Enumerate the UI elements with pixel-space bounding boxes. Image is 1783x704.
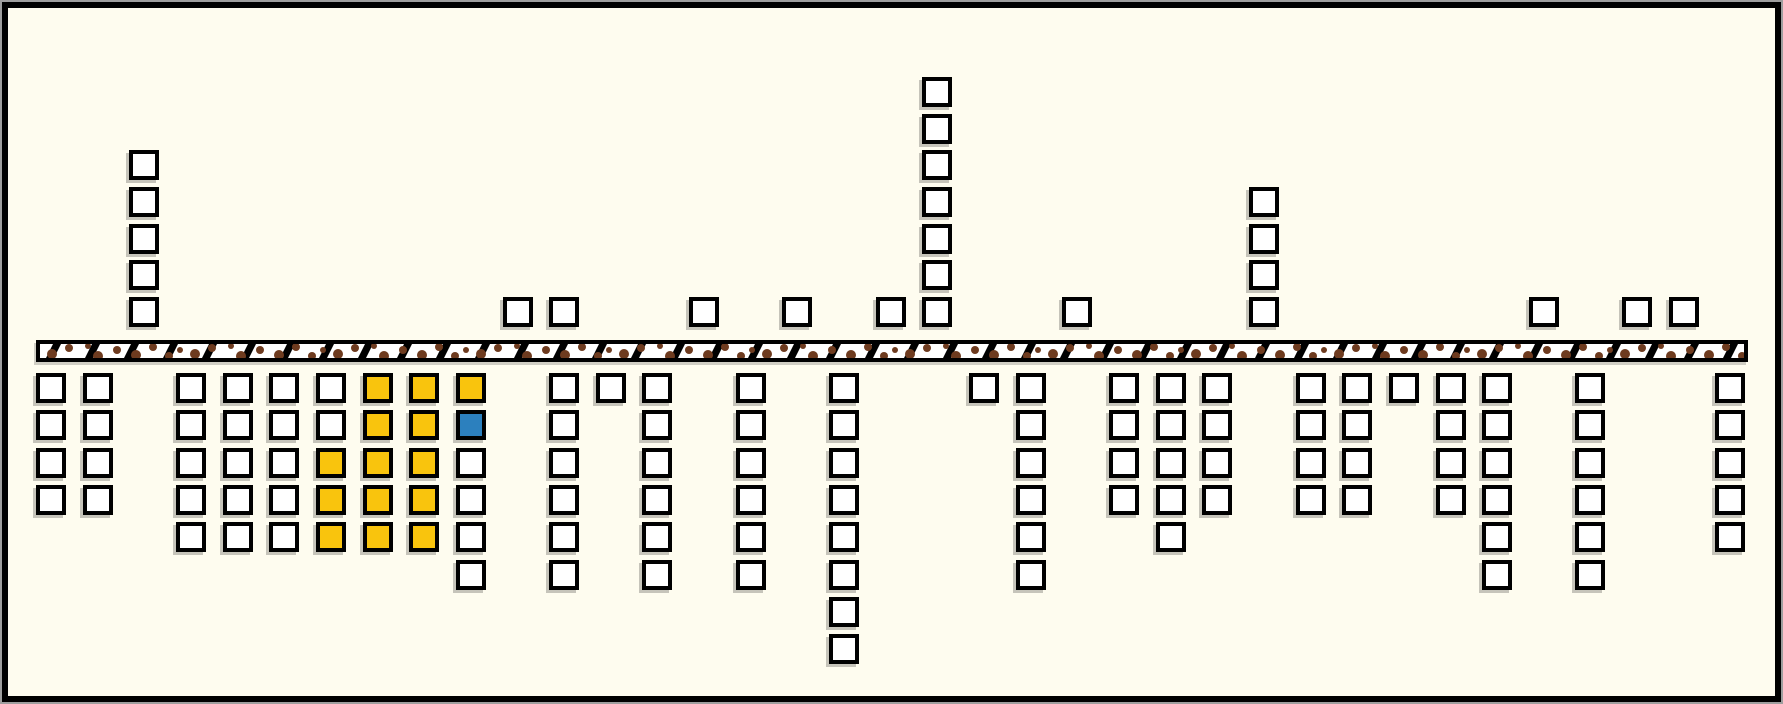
marker-square-below[interactable] [1715, 485, 1745, 515]
marker-square-below[interactable] [1436, 410, 1466, 440]
marker-square-above[interactable] [922, 77, 952, 107]
marker-square-below[interactable] [269, 448, 299, 478]
marker-square-below[interactable] [1156, 410, 1186, 440]
marker-square-below[interactable] [1202, 485, 1232, 515]
marker-square-below[interactable] [36, 448, 66, 478]
marker-square-above[interactable] [1622, 297, 1652, 327]
marker-square-below[interactable] [969, 373, 999, 403]
marker-square-highlighted[interactable] [316, 522, 346, 552]
marker-square-below[interactable] [596, 373, 626, 403]
marker-square-below[interactable] [549, 410, 579, 440]
marker-square-below[interactable] [1202, 448, 1232, 478]
marker-square-below[interactable] [1156, 485, 1186, 515]
marker-square-above[interactable] [922, 260, 952, 290]
marker-square-below[interactable] [1575, 373, 1605, 403]
marker-layer [2, 2, 1781, 702]
marker-square-below[interactable] [1296, 485, 1326, 515]
marker-square-highlighted[interactable] [409, 448, 439, 478]
marker-square-below[interactable] [829, 597, 859, 627]
marker-square-below[interactable] [83, 485, 113, 515]
marker-square-above[interactable] [129, 150, 159, 180]
marker-square-below[interactable] [176, 373, 206, 403]
marker-square-below[interactable] [1436, 448, 1466, 478]
marker-square-below[interactable] [456, 448, 486, 478]
marker-square-highlighted[interactable] [363, 485, 393, 515]
marker-square-below[interactable] [642, 448, 672, 478]
marker-square-active[interactable] [456, 410, 486, 440]
marker-square-below[interactable] [1715, 522, 1745, 552]
marker-square-below[interactable] [829, 373, 859, 403]
marker-square-below[interactable] [829, 560, 859, 590]
marker-square-above[interactable] [1249, 224, 1279, 254]
marker-square-below[interactable] [829, 522, 859, 552]
marker-square-below[interactable] [1342, 448, 1372, 478]
marker-square-below[interactable] [549, 560, 579, 590]
marker-square-below[interactable] [1389, 373, 1419, 403]
marker-square-below[interactable] [1715, 410, 1745, 440]
marker-square-below[interactable] [176, 485, 206, 515]
marker-square-above[interactable] [922, 297, 952, 327]
marker-square-above[interactable] [549, 297, 579, 327]
marker-square-below[interactable] [316, 373, 346, 403]
marker-square-below[interactable] [642, 485, 672, 515]
marker-square-below[interactable] [1482, 410, 1512, 440]
marker-square-below[interactable] [1436, 373, 1466, 403]
marker-square-below[interactable] [176, 522, 206, 552]
marker-square-above[interactable] [689, 297, 719, 327]
marker-square-below[interactable] [36, 410, 66, 440]
marker-square-above[interactable] [1669, 297, 1699, 327]
marker-square-below[interactable] [736, 410, 766, 440]
marker-square-above[interactable] [503, 297, 533, 327]
marker-square-highlighted[interactable] [363, 373, 393, 403]
marker-square-below[interactable] [1156, 373, 1186, 403]
marker-square-below[interactable] [1342, 410, 1372, 440]
marker-square-highlighted[interactable] [363, 410, 393, 440]
marker-square-below[interactable] [223, 448, 253, 478]
marker-square-highlighted[interactable] [316, 448, 346, 478]
marker-square-below[interactable] [269, 485, 299, 515]
marker-square-below[interactable] [1482, 485, 1512, 515]
marker-square-highlighted[interactable] [409, 485, 439, 515]
marker-square-below[interactable] [1109, 485, 1139, 515]
marker-square-below[interactable] [1482, 522, 1512, 552]
marker-square-below[interactable] [1482, 560, 1512, 590]
marker-square-below[interactable] [642, 522, 672, 552]
marker-square-below[interactable] [223, 485, 253, 515]
marker-square-below[interactable] [736, 485, 766, 515]
marker-square-below[interactable] [269, 373, 299, 403]
marker-square-below[interactable] [269, 522, 299, 552]
marker-square-below[interactable] [1156, 522, 1186, 552]
marker-square-above[interactable] [129, 224, 159, 254]
marker-square-highlighted[interactable] [363, 448, 393, 478]
marker-square-below[interactable] [1715, 448, 1745, 478]
marker-square-highlighted[interactable] [316, 485, 346, 515]
marker-square-below[interactable] [829, 410, 859, 440]
marker-square-below[interactable] [1016, 560, 1046, 590]
marker-square-below[interactable] [1482, 373, 1512, 403]
marker-square-below[interactable] [83, 373, 113, 403]
marker-square-above[interactable] [1062, 297, 1092, 327]
marker-square-highlighted[interactable] [456, 373, 486, 403]
marker-square-below[interactable] [316, 410, 346, 440]
marker-square-below[interactable] [736, 373, 766, 403]
marker-square-below[interactable] [1342, 373, 1372, 403]
marker-square-below[interactable] [829, 485, 859, 515]
marker-square-above[interactable] [129, 187, 159, 217]
marker-square-below[interactable] [1109, 373, 1139, 403]
marker-square-below[interactable] [456, 522, 486, 552]
marker-square-below[interactable] [549, 373, 579, 403]
marker-square-below[interactable] [1156, 448, 1186, 478]
marker-square-below[interactable] [1342, 485, 1372, 515]
marker-square-below[interactable] [456, 560, 486, 590]
marker-square-above[interactable] [129, 260, 159, 290]
marker-square-below[interactable] [1575, 410, 1605, 440]
marker-square-below[interactable] [456, 485, 486, 515]
marker-square-below[interactable] [1296, 448, 1326, 478]
marker-square-highlighted[interactable] [363, 522, 393, 552]
marker-square-below[interactable] [549, 485, 579, 515]
marker-square-below[interactable] [1575, 448, 1605, 478]
marker-square-below[interactable] [1575, 560, 1605, 590]
marker-square-below[interactable] [829, 448, 859, 478]
marker-square-below[interactable] [176, 448, 206, 478]
marker-square-below[interactable] [1202, 373, 1232, 403]
marker-square-below[interactable] [176, 410, 206, 440]
marker-square-above[interactable] [782, 297, 812, 327]
marker-square-below[interactable] [83, 410, 113, 440]
marker-square-highlighted[interactable] [409, 410, 439, 440]
marker-square-above[interactable] [1529, 297, 1559, 327]
marker-square-below[interactable] [1016, 373, 1046, 403]
marker-square-below[interactable] [642, 410, 672, 440]
marker-square-below[interactable] [642, 373, 672, 403]
marker-square-below[interactable] [223, 522, 253, 552]
marker-square-below[interactable] [1575, 485, 1605, 515]
marker-square-above[interactable] [1249, 260, 1279, 290]
marker-square-below[interactable] [1575, 522, 1605, 552]
figure-canvas [0, 0, 1783, 704]
marker-square-below[interactable] [1016, 485, 1046, 515]
marker-square-highlighted[interactable] [409, 522, 439, 552]
marker-square-below[interactable] [829, 634, 859, 664]
marker-square-below[interactable] [1436, 485, 1466, 515]
marker-square-below[interactable] [36, 485, 66, 515]
marker-square-below[interactable] [736, 560, 766, 590]
marker-square-below[interactable] [1296, 373, 1326, 403]
marker-square-above[interactable] [922, 150, 952, 180]
marker-square-below[interactable] [223, 410, 253, 440]
marker-square-below[interactable] [36, 373, 66, 403]
marker-square-above[interactable] [922, 114, 952, 144]
marker-square-below[interactable] [1109, 410, 1139, 440]
marker-square-below[interactable] [223, 373, 253, 403]
marker-square-above[interactable] [1249, 297, 1279, 327]
marker-square-below[interactable] [1202, 410, 1232, 440]
marker-square-above[interactable] [922, 187, 952, 217]
marker-square-below[interactable] [1482, 448, 1512, 478]
marker-square-below[interactable] [549, 522, 579, 552]
marker-square-below[interactable] [83, 448, 113, 478]
marker-square-below[interactable] [1109, 448, 1139, 478]
marker-square-above[interactable] [922, 224, 952, 254]
marker-square-below[interactable] [736, 522, 766, 552]
marker-square-below[interactable] [1016, 448, 1046, 478]
marker-square-highlighted[interactable] [409, 373, 439, 403]
marker-square-below[interactable] [1016, 522, 1046, 552]
marker-square-below[interactable] [736, 448, 766, 478]
marker-square-below[interactable] [642, 560, 672, 590]
marker-square-below[interactable] [549, 448, 579, 478]
marker-square-below[interactable] [1296, 410, 1326, 440]
marker-square-above[interactable] [876, 297, 906, 327]
marker-square-above[interactable] [1249, 187, 1279, 217]
marker-square-below[interactable] [1715, 373, 1745, 403]
marker-square-below[interactable] [269, 410, 299, 440]
marker-square-below[interactable] [1016, 410, 1046, 440]
marker-square-above[interactable] [129, 297, 159, 327]
